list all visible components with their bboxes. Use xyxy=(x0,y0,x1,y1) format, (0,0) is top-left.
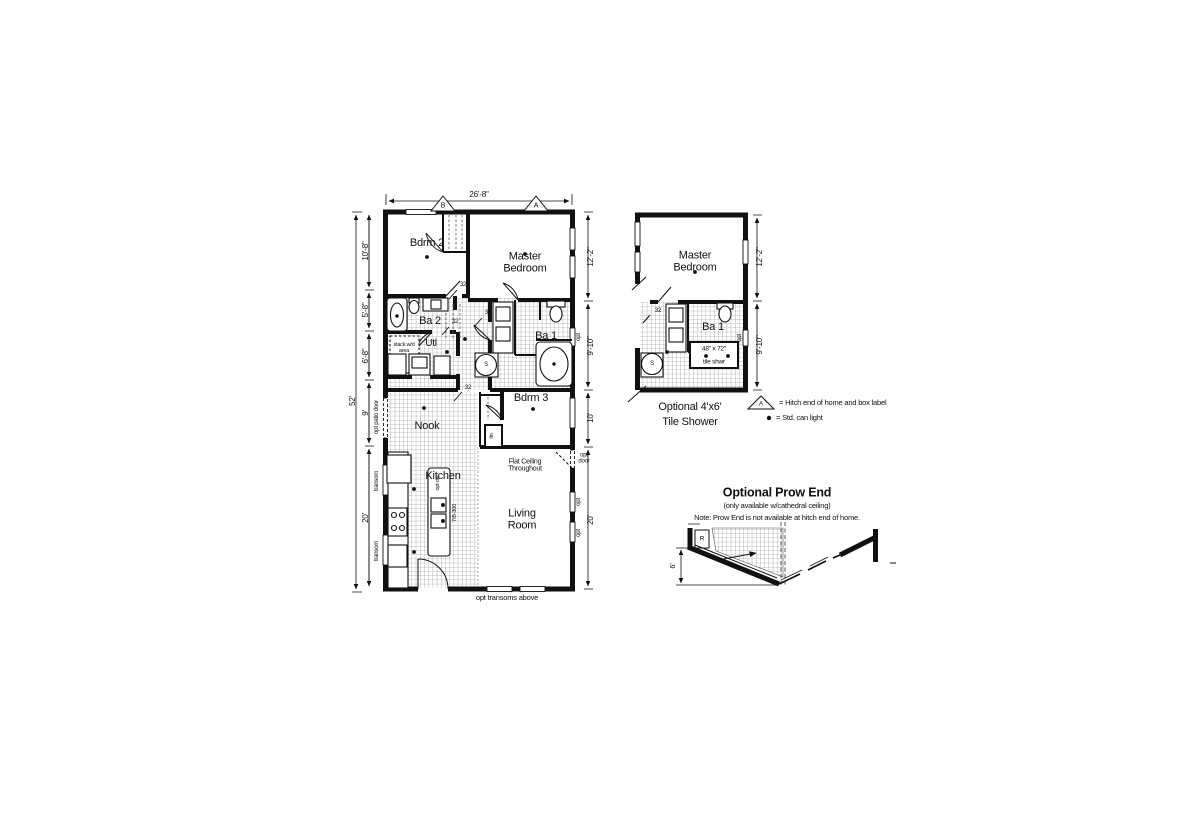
alt-door-size: 32 xyxy=(655,308,661,314)
alt-dim-right-2: 9'-10" xyxy=(756,335,764,354)
dim-right-2: 9'-10" xyxy=(587,336,595,355)
alt-shower-size-label: 48" x 72" xyxy=(702,347,726,354)
room-label-master: Master Bedroom xyxy=(493,251,557,274)
marker-a-label: A xyxy=(534,202,538,209)
room-label-kitchen: Kitchen xyxy=(425,471,460,483)
opt-transoms-note: opt transoms above xyxy=(476,594,538,602)
dim-left-1: 10'-8" xyxy=(362,241,370,260)
stack-wd-note: stack w/d area xyxy=(391,343,417,355)
alt-plan-dimensions xyxy=(753,215,762,390)
transom-label-1: transom xyxy=(374,471,380,491)
legend-hitch-text: = Hitch end of home and box label xyxy=(779,399,886,407)
alt-caption-line1: Optional 4'x6' xyxy=(658,402,721,414)
floor-plan-sheet: 26'-8" B A 52' 10'-8" 5'-8" 6'-8" 9' 20'… xyxy=(0,0,1200,818)
dim-top-width: 26'-8" xyxy=(469,191,488,199)
legend-can-light-text: = Std. can light xyxy=(776,414,823,422)
door-size-2: 32 xyxy=(485,310,491,316)
alt-room-label-master: Master Bedroom xyxy=(663,250,727,273)
prow-r-label: R xyxy=(700,537,705,544)
room-label-bdrm3: Bdrm 3 xyxy=(514,393,548,405)
prow-diagram xyxy=(676,522,896,586)
room-label-ba1: Ba 1 xyxy=(535,331,557,343)
dim-right-1: 12'-2" xyxy=(587,247,595,266)
island-model-label: 7/B-300 xyxy=(453,504,459,522)
dim-right-4: 20' xyxy=(587,515,595,525)
dim-overall-length: 52' xyxy=(349,396,357,406)
alt-tile-shwr-label: tile shwr xyxy=(703,360,725,367)
hitch-markers xyxy=(431,196,548,211)
marker-b-label: B xyxy=(441,202,445,209)
opt-window-label-2: opt xyxy=(576,498,582,506)
prow-note: Note: Prow End is not available at hitch… xyxy=(694,514,860,522)
alt-shower-s-label: S xyxy=(650,361,654,367)
dim-right-3: 10' xyxy=(587,413,595,423)
dim-left-3: 6'-8" xyxy=(362,349,370,364)
alt-caption-line2: Tile Shower xyxy=(662,417,717,429)
transom-label-2: transom xyxy=(374,541,380,561)
opt-patio-door-label: opt patio door xyxy=(374,400,380,434)
shower-s-label: S xyxy=(484,362,488,368)
prow-dim: 6' xyxy=(669,563,677,568)
room-label-ba2: Ba 2 xyxy=(419,316,441,328)
room-label-living: Living Room xyxy=(498,508,546,531)
room-label-nook: Nook xyxy=(415,421,440,433)
plan-linework xyxy=(0,0,1200,818)
room-label-utl: Utl xyxy=(425,339,437,350)
flat-ceiling-note: Flat Ceiling Throughout xyxy=(499,459,551,474)
alt-dim-right-1: 12'-2" xyxy=(756,247,764,266)
opt-door-swing xyxy=(556,452,572,468)
door-size-4: 32 xyxy=(465,385,471,391)
prow-title: Optional Prow End xyxy=(723,486,831,499)
room-label-bdrm2: Bdrm 2 xyxy=(410,238,444,250)
prow-subtitle: (only available w/cathedral ceiling) xyxy=(723,502,830,510)
door-size-1: 32 xyxy=(460,282,466,288)
door-size-3: 32 xyxy=(452,319,458,325)
dim-left-2: 5'-8" xyxy=(362,303,370,318)
opt-dw-label: opt dw xyxy=(436,475,442,490)
legend-hitch-marker-letter: A xyxy=(759,402,763,409)
alt-opt-label: opt xyxy=(737,334,743,342)
opt-window-label-3: opt xyxy=(576,529,582,537)
dim-left-4: 9' xyxy=(362,410,370,416)
opt-door-label: opt door xyxy=(574,453,594,466)
dim-left-5: 20' xyxy=(362,513,370,523)
opt-window-label-1: opt xyxy=(576,333,582,341)
linen-label: lin xyxy=(490,434,496,439)
alt-room-label-ba1: Ba 1 xyxy=(702,322,724,334)
